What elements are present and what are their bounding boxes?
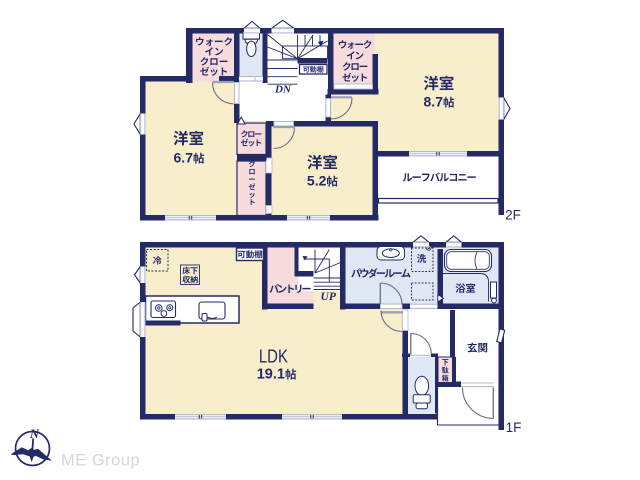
svg-text:19.1: 19.1 [257,367,285,383]
svg-text:8.7: 8.7 [424,94,444,110]
svg-text:N: N [29,427,40,441]
svg-text:ME Group: ME Group [61,452,140,470]
svg-text:5.2: 5.2 [307,173,327,189]
svg-text:1F: 1F [506,420,522,435]
svg-text:2F: 2F [505,208,521,223]
svg-text:6.7: 6.7 [174,150,194,166]
svg-text:DN: DN [274,84,292,96]
svg-text:LDK: LDK [259,347,288,367]
svg-text:UP: UP [321,291,337,303]
